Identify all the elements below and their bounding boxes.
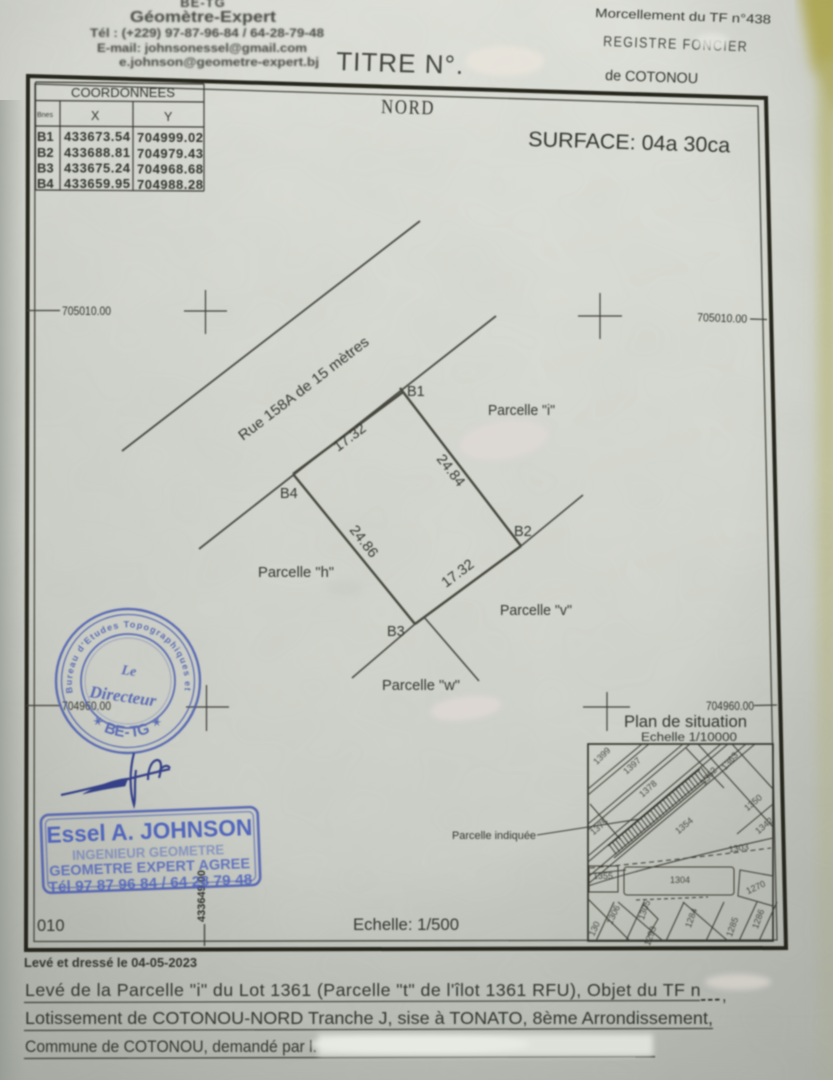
svg-text:010: 010	[37, 917, 65, 935]
svg-text:Géomètre-Expert: Géomètre-Expert	[130, 9, 276, 26]
svg-text:,: ,	[722, 987, 727, 1005]
svg-text:B1: B1	[407, 384, 425, 400]
svg-text:e.johnson@geometre-expert.bj: e.johnson@geometre-expert.bj	[119, 57, 319, 69]
svg-text:433675.24: 433675.24	[64, 161, 131, 176]
svg-text:B2: B2	[514, 524, 532, 540]
svg-text:1304: 1304	[670, 875, 690, 885]
svg-text:X: X	[91, 109, 100, 123]
svg-text:Parcelle "w": Parcelle "w"	[382, 677, 460, 694]
svg-text:B4: B4	[37, 176, 54, 191]
svg-text:Parcelle "i": Parcelle "i"	[488, 402, 555, 419]
svg-text:433673.54: 433673.54	[64, 129, 131, 144]
svg-text:B4: B4	[280, 486, 298, 502]
svg-text:Plan de situation: Plan de situation	[624, 713, 747, 731]
svg-text:Lotissement de COTONOU-NORD Tr: Lotissement de COTONOU-NORD Tranche J, s…	[25, 1008, 713, 1028]
svg-text:433688.81: 433688.81	[64, 145, 130, 160]
svg-text:COORDONNEES: COORDONNEES	[71, 86, 175, 100]
svg-text:704979.43: 704979.43	[137, 146, 203, 161]
svg-text:de COTONOU: de COTONOU	[605, 68, 699, 87]
svg-text:704960.00: 704960.00	[706, 701, 754, 713]
svg-text:Le: Le	[119, 663, 137, 680]
svg-text:Levé de la Parcelle "i" du Lot: Levé de la Parcelle "i" du Lot 1361 (Par…	[25, 980, 701, 1000]
svg-text:TITRE N°.: TITRE N°.	[336, 46, 465, 80]
svg-text:B1: B1	[37, 129, 54, 144]
svg-text:B2: B2	[37, 145, 54, 160]
svg-text:Parcelle indiquée: Parcelle indiquée	[452, 830, 536, 842]
svg-text:NORD: NORD	[381, 96, 436, 119]
svg-text:1355: 1355	[593, 871, 613, 881]
svg-text:B3: B3	[387, 624, 405, 640]
svg-text:Parcelle "h": Parcelle "h"	[258, 564, 334, 581]
svg-text:Echelle: 1/500: Echelle: 1/500	[353, 916, 459, 934]
svg-text:Echelle 1/10000: Echelle 1/10000	[641, 732, 737, 744]
svg-text:Levé et dressé le 04-05-2023: Levé et dressé le 04-05-2023	[24, 956, 197, 970]
svg-text:Bnes: Bnes	[37, 112, 53, 119]
svg-text:Commune de COTONOU, demandé pa: Commune de COTONOU, demandé par l.	[25, 1038, 317, 1056]
svg-text:E-mail: johnsonessel@gmail.com: E-mail: johnsonessel@gmail.com	[97, 43, 307, 55]
svg-text:704968.68: 704968.68	[137, 162, 203, 177]
svg-text:433659.95: 433659.95	[64, 176, 130, 191]
svg-text:Parcelle "v": Parcelle "v"	[500, 602, 572, 619]
svg-text:704999.02: 704999.02	[137, 130, 203, 145]
svg-text:Y: Y	[164, 110, 173, 124]
svg-text:705010.00: 705010.00	[62, 306, 111, 318]
svg-text:704988.28: 704988.28	[137, 177, 203, 192]
svg-text:B3: B3	[37, 161, 54, 176]
svg-text:705010.00: 705010.00	[697, 312, 747, 326]
svg-text:Tél : (+229) 97-87-96-84 / 64-: Tél : (+229) 97-87-96-84 / 64-28-79-48	[90, 28, 325, 40]
